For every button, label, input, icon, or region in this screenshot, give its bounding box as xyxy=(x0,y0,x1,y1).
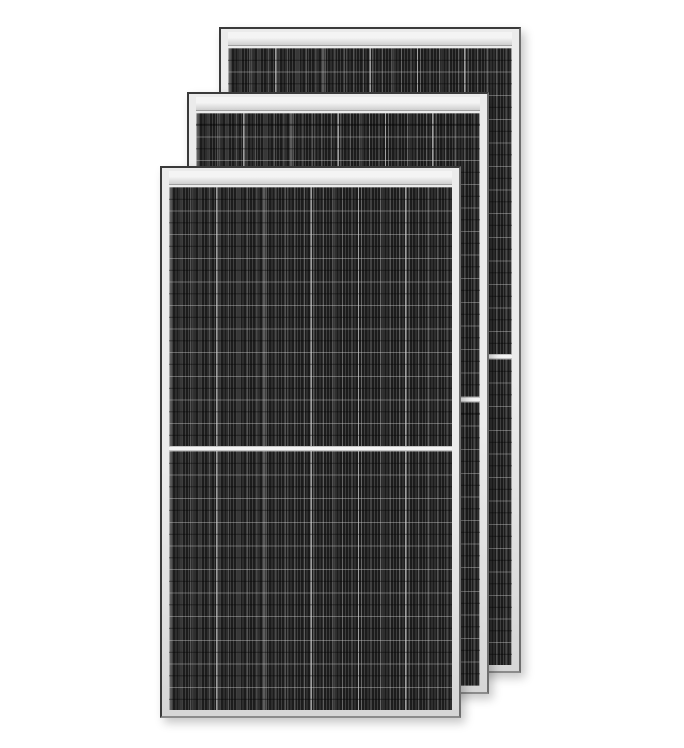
product-image-canvas xyxy=(0,0,684,748)
top-frame-bar xyxy=(228,32,512,46)
top-frame-bar xyxy=(169,171,452,185)
cell-grid-lower-half xyxy=(169,451,452,710)
solar-panel-front xyxy=(160,166,461,718)
cell-grid-upper-half xyxy=(169,187,452,446)
top-frame-bar xyxy=(196,97,480,111)
aluminum-frame xyxy=(160,166,461,718)
